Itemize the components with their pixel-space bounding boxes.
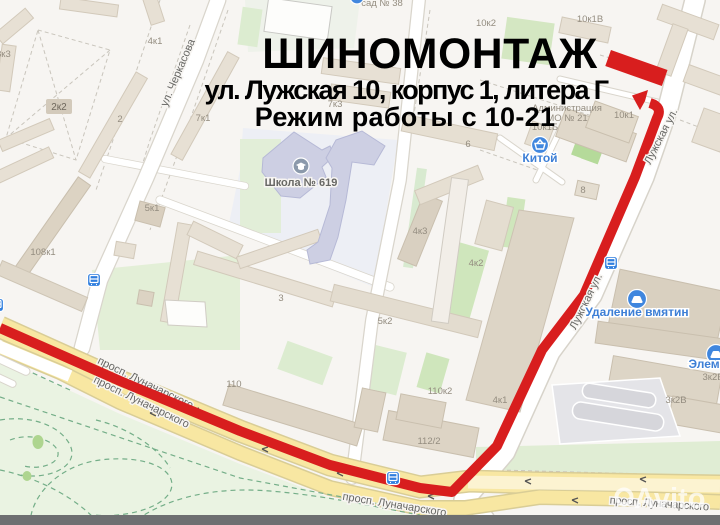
- svg-text:Китой: Китой: [522, 151, 557, 165]
- svg-text:10к2: 10к2: [476, 18, 496, 29]
- svg-text:Удаление вмятин: Удаление вмятин: [585, 305, 688, 319]
- svg-text:ШИНОМОНТАЖ: ШИНОМОНТАЖ: [262, 31, 598, 78]
- svg-text:6: 6: [465, 139, 470, 150]
- svg-text:3к2Б: 3к2Б: [703, 372, 720, 383]
- svg-text:10к1В: 10к1В: [577, 14, 603, 25]
- svg-text:4к2: 4к2: [469, 258, 484, 269]
- svg-text:108к1: 108к1: [30, 247, 55, 258]
- svg-text:5к2: 5к2: [378, 316, 393, 327]
- svg-text:8: 8: [580, 185, 585, 196]
- svg-text:2к2: 2к2: [51, 102, 67, 113]
- svg-text:2: 2: [117, 114, 122, 125]
- svg-text:10к1: 10к1: [614, 110, 634, 121]
- svg-text:110: 110: [226, 379, 241, 390]
- svg-text:Элемент: Элемент: [689, 357, 720, 371]
- svg-text:Школа № 619: Школа № 619: [265, 177, 338, 189]
- svg-text:3: 3: [278, 293, 283, 304]
- svg-text:сад № 38: сад № 38: [361, 0, 403, 9]
- svg-text:110к2: 110к2: [428, 386, 453, 397]
- svg-text:4к3: 4к3: [413, 226, 428, 237]
- svg-text:Avito: Avito: [634, 483, 705, 515]
- svg-text:7к1: 7к1: [196, 113, 211, 124]
- svg-text:Режим работы с 10-21: Режим работы с 10-21: [255, 102, 556, 132]
- svg-text:3к2В: 3к2В: [665, 395, 686, 406]
- svg-text:112/2: 112/2: [417, 436, 440, 447]
- svg-text:ул. Лужская 10, корпус 1, лите: ул. Лужская 10, корпус 1, литера Г: [205, 75, 609, 105]
- svg-text:4к1: 4к1: [493, 395, 508, 406]
- svg-text:5к1: 5к1: [145, 203, 160, 214]
- svg-text:4к1: 4к1: [148, 36, 163, 47]
- svg-text:8к3: 8к3: [0, 49, 11, 60]
